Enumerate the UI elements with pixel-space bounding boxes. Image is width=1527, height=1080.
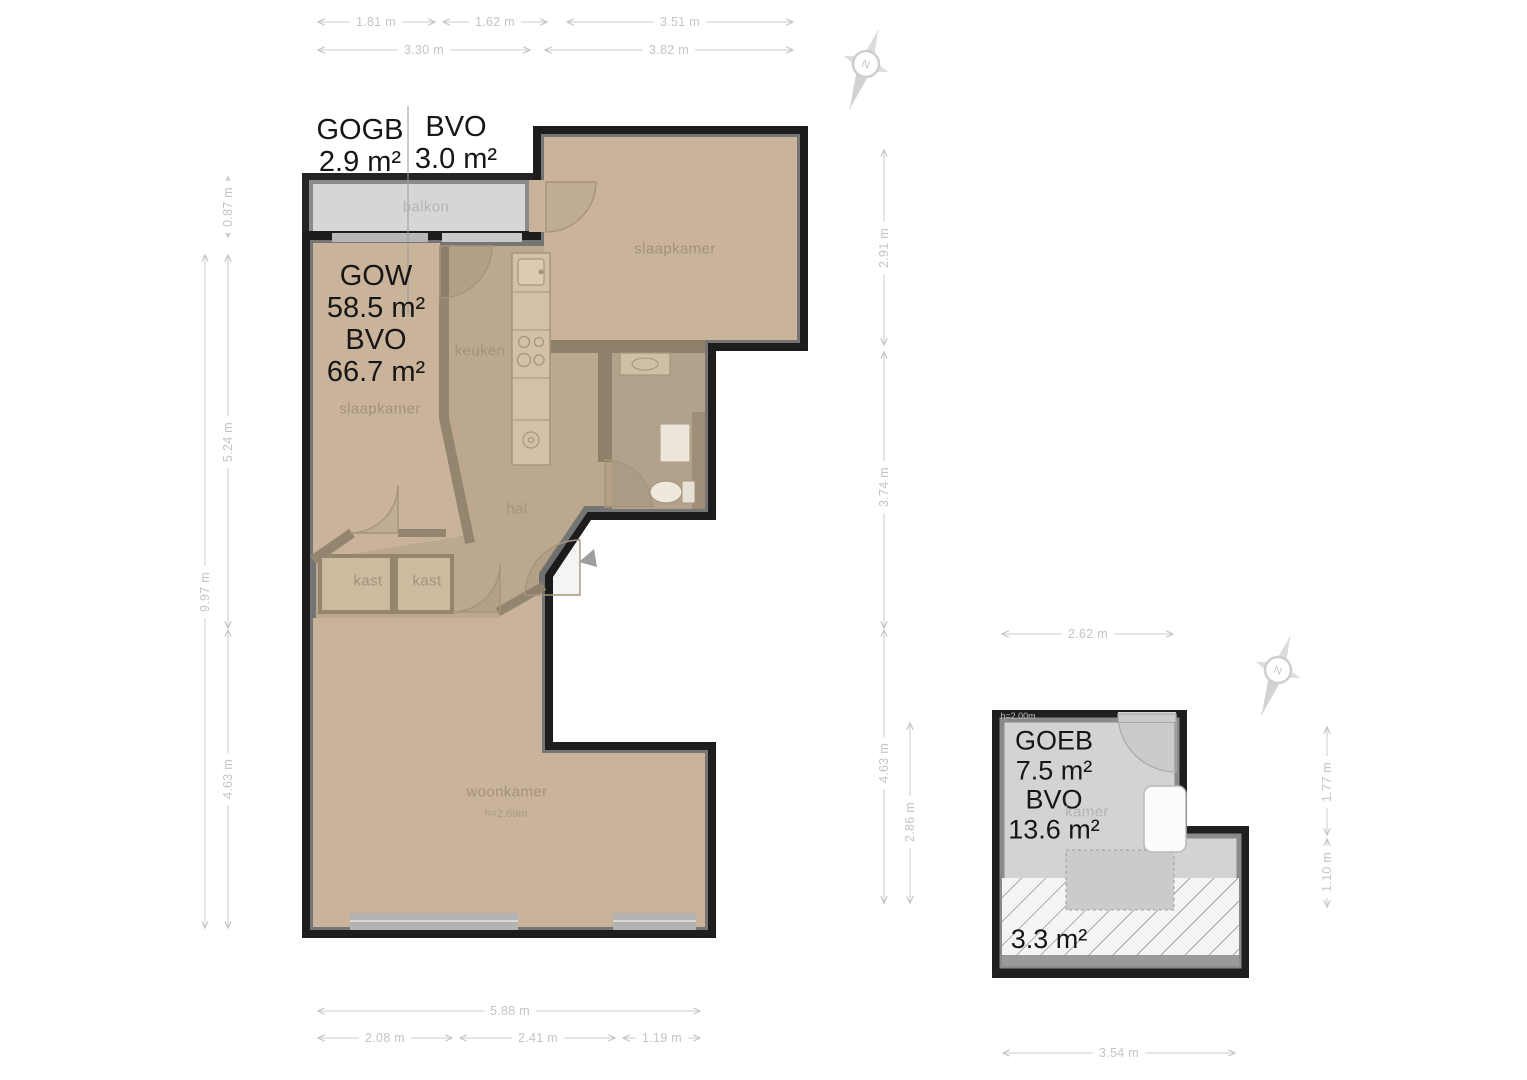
boiler-unit-icon (1144, 786, 1186, 852)
storage-dashed-zone (1066, 850, 1174, 910)
balcony-window (332, 233, 428, 242)
toilet-tank (682, 481, 695, 503)
compass-rose-storage: N (1239, 628, 1313, 723)
floorplan-drawing: N N (0, 0, 1527, 1080)
storage-plan (992, 710, 1249, 978)
bedroom-door-opening (529, 180, 546, 232)
storage-bottom-lining (1002, 955, 1239, 966)
toilet-icon (650, 481, 682, 503)
closet-right (396, 556, 452, 612)
bedroom-bathroom-wall (544, 340, 705, 353)
entrance-arrow-icon (579, 549, 597, 567)
shower-icon (660, 424, 690, 462)
livingroom-floor (313, 592, 705, 927)
floorplan-canvas: N N GOGB 2.9 m² BVO 3.0 m² GOW 58.5 m² B… (0, 0, 1527, 1080)
closet-left (320, 556, 392, 612)
balcony-door-opening (442, 233, 522, 242)
kitchen-counter (512, 253, 550, 465)
compass-rose-main: N (827, 22, 901, 117)
main-plan (302, 106, 808, 938)
washbasin-icon (620, 353, 670, 375)
balcony-floor (311, 182, 527, 234)
bathroom-left-wall (598, 352, 612, 462)
bedroom-top-floor (544, 137, 797, 340)
